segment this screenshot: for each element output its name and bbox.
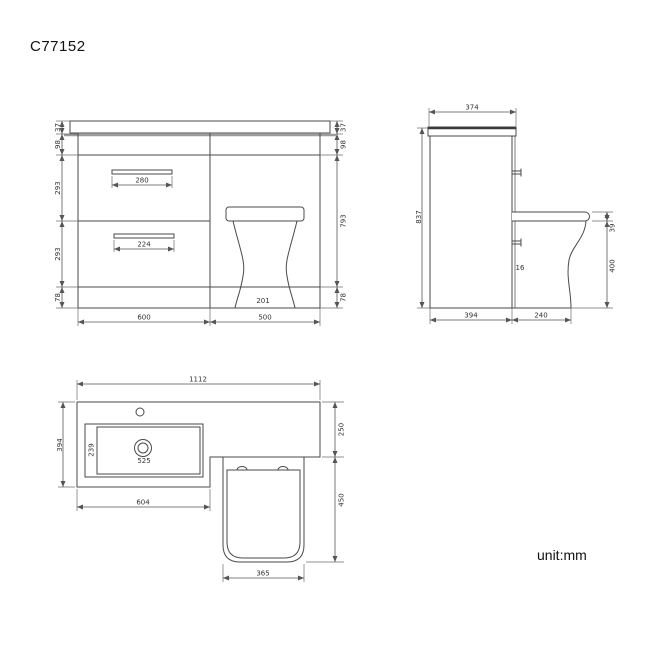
seat-hinge-left xyxy=(237,467,247,470)
dim-front-right-2: 793 xyxy=(340,214,348,227)
basin-outer xyxy=(85,424,203,477)
toilet-pedestal-left xyxy=(233,221,244,308)
dim-basin-width: 525 xyxy=(137,457,150,465)
dim-front-left-3: 293 xyxy=(54,247,62,260)
dim-cabinet-depth: 394 xyxy=(464,312,478,320)
toilet-pan-profile xyxy=(568,221,586,308)
fixing-bolt-top xyxy=(512,169,521,177)
dim-front-left-4: 78 xyxy=(54,293,62,302)
front-view: 280 224 201 37 98 293 293 78 xyxy=(54,121,348,326)
seat-inner-plan xyxy=(227,470,300,558)
dim-vanity-plan-width: 604 xyxy=(136,499,150,507)
dim-basin-depth: 239 xyxy=(88,443,96,456)
dim-top-depth: 374 xyxy=(465,104,479,112)
seat-hinge-right xyxy=(278,467,288,470)
seat-outer-plan xyxy=(223,457,304,562)
basin-inner xyxy=(97,427,200,474)
dim-overall-height: 837 xyxy=(415,210,423,223)
dim-pan-length: 450 xyxy=(338,493,346,506)
dim-gap: 16 xyxy=(516,264,525,272)
waste-outer xyxy=(135,440,152,457)
side-view: 16 374 837 39 400 394 240 xyxy=(415,104,617,325)
waste-inner xyxy=(138,443,148,453)
dim-front-right-1: 98 xyxy=(340,140,348,149)
dim-toilet-base: 201 xyxy=(256,297,269,305)
product-code: C77152 xyxy=(30,38,86,55)
plan-view: 525 239 1112 394 604 250 450 365 xyxy=(56,376,346,583)
fixing-bolt-bottom xyxy=(512,239,521,247)
toilet-pedestal-right xyxy=(286,221,297,308)
cabinet-side xyxy=(430,136,512,308)
unit-label: unit:mm xyxy=(537,547,587,563)
dim-vanity-width: 600 xyxy=(137,314,150,322)
dim-bottom-handle: 224 xyxy=(137,241,151,249)
dim-front-left-0: 37 xyxy=(54,123,62,132)
toilet-seat-side xyxy=(512,212,590,221)
dim-front-right-0: 37 xyxy=(340,123,348,132)
dim-front-right-3: 78 xyxy=(340,293,348,302)
dim-worktop-depth: 394 xyxy=(56,438,64,452)
dim-toilet-projection: 240 xyxy=(534,312,547,320)
dim-front-left-2: 293 xyxy=(54,181,62,194)
dim-seat-thickness: 39 xyxy=(609,224,617,233)
top-drawer-handle xyxy=(112,170,172,174)
tap-hole xyxy=(136,408,144,416)
dim-pan-height: 400 xyxy=(609,259,617,272)
dim-front-left-1: 98 xyxy=(54,140,62,149)
bottom-drawer-handle xyxy=(114,234,174,238)
dim-wc-width: 500 xyxy=(258,314,271,322)
dim-seat-width: 365 xyxy=(256,570,269,578)
dim-wc-counter-depth: 250 xyxy=(338,423,346,436)
worktop-front xyxy=(70,121,330,133)
toilet-seat-front xyxy=(226,207,304,221)
dim-overall-width: 1112 xyxy=(189,376,207,384)
dim-top-handle: 280 xyxy=(135,177,148,185)
technical-drawing: C77152 unit:mm 280 224 201 xyxy=(0,0,650,650)
drawing-page: C77152 unit:mm 280 224 201 xyxy=(0,0,650,650)
